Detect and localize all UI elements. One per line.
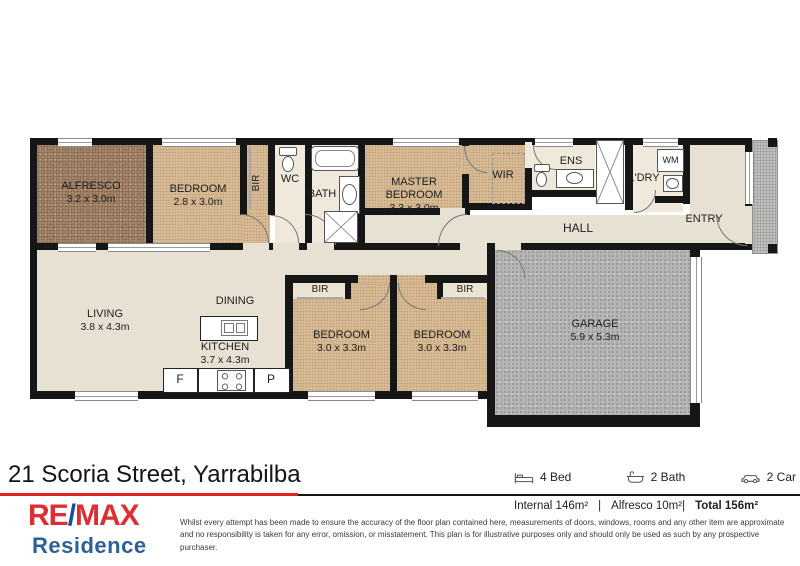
room-label-wir: WIR xyxy=(486,169,520,182)
window xyxy=(75,391,138,401)
bath-icon xyxy=(626,470,645,484)
sink-icon xyxy=(236,323,245,333)
doorway xyxy=(525,142,532,168)
fridge-label: F xyxy=(166,372,194,386)
window xyxy=(58,138,92,147)
title-underline-red xyxy=(0,493,298,496)
floor-plan: ALFRESCO3.2 x 3.0m BEDROOM2.8 x 3.0m BIR… xyxy=(0,0,800,460)
window xyxy=(58,243,96,252)
closet-rail xyxy=(441,297,485,299)
wall xyxy=(30,138,37,398)
bath-summary: 2 Bath xyxy=(626,470,686,484)
car-count: 2 Car xyxy=(767,470,796,484)
wall xyxy=(345,283,351,299)
toilet-icon xyxy=(536,172,547,187)
window xyxy=(393,138,459,147)
wall xyxy=(690,243,700,257)
bath-count: 2 Bath xyxy=(651,470,686,484)
room-label-ens: ENS xyxy=(553,155,589,168)
laundry-tub-icon xyxy=(666,178,679,189)
bench-divider xyxy=(197,368,199,393)
wall xyxy=(487,243,495,427)
pantry-label: P xyxy=(256,372,286,386)
bench-divider xyxy=(253,368,255,393)
entry-porch xyxy=(752,140,778,254)
window xyxy=(643,138,678,147)
floor-plan-page: ALFRESCO3.2 x 3.0m BEDROOM2.8 x 3.0m BIR… xyxy=(0,0,800,566)
room-label-bedroom3: BEDROOM3.0 x 3.3m xyxy=(293,329,390,355)
remax-wordmark: RE/MAX xyxy=(28,501,147,531)
property-address: 21 Scoria Street, Yarrabilba xyxy=(8,461,301,489)
room-label-bath: BATH xyxy=(302,188,342,201)
bed-icon xyxy=(514,471,534,484)
property-summary: 4 Bed 2 Bath 2 Car xyxy=(514,468,796,486)
room-label-bir3: BIR xyxy=(306,284,334,296)
alfresco-area: Alfresco 10m²| xyxy=(611,500,685,512)
bed-summary: 4 Bed xyxy=(514,470,571,484)
title-underline-black xyxy=(298,494,800,496)
wall xyxy=(390,283,397,398)
remax-logo: RE/MAX Residence xyxy=(28,501,147,557)
sink-icon xyxy=(224,323,234,333)
doorway xyxy=(243,243,269,250)
area-measurements: Internal 146m² | Alfresco 10m²| Total 15… xyxy=(514,500,796,512)
wall xyxy=(683,138,690,204)
room-label-bir4: BIR xyxy=(451,284,479,296)
room-label-garage: GARAGE5.9 x 5.3m xyxy=(545,318,645,344)
internal-area: Internal 146m² xyxy=(514,500,588,512)
doorway xyxy=(358,275,390,283)
room-label-living: LIVING3.8 x 4.3m xyxy=(55,308,155,334)
basin-icon xyxy=(342,184,357,205)
toilet-icon xyxy=(282,156,294,172)
doorway xyxy=(397,275,425,283)
room-label-hall: HALL xyxy=(556,221,600,235)
car-summary: 2 Car xyxy=(740,470,796,484)
doorway xyxy=(495,243,521,250)
window xyxy=(308,391,375,401)
shower-icon xyxy=(324,211,358,243)
toilet-icon xyxy=(534,164,550,172)
room-label-entry: ENTRY xyxy=(680,213,728,226)
garage-door xyxy=(690,257,702,403)
room-label-alfresco: ALFRESCO3.2 x 3.0m xyxy=(41,180,141,206)
room-label-kitchen: KITCHEN3.7 x 4.3m xyxy=(197,341,253,367)
room-label-bedroom4: BEDROOM3.0 x 3.3m xyxy=(397,329,487,355)
wall xyxy=(462,203,530,210)
porch-post xyxy=(768,138,777,147)
wall xyxy=(285,275,495,283)
doorway xyxy=(273,243,299,250)
room-label-bir1: BIR xyxy=(251,165,263,201)
wall xyxy=(487,243,752,250)
basin-icon xyxy=(566,172,583,184)
disclaimer-text: Whilst every attempt has been made to en… xyxy=(180,517,796,554)
separator: | xyxy=(598,500,601,512)
room-label-wc: WC xyxy=(272,173,308,186)
room-label-dining: DINING xyxy=(205,295,265,308)
cooktop-icon xyxy=(217,370,246,391)
wall xyxy=(146,138,153,250)
remax-office-name: Residence xyxy=(32,535,147,557)
sliding-door xyxy=(108,243,210,252)
toilet-icon xyxy=(279,147,297,156)
room-label-ldry: L'DRY xyxy=(622,172,666,185)
wall xyxy=(525,190,600,197)
window xyxy=(162,138,236,147)
bathtub-icon xyxy=(315,150,355,167)
wall xyxy=(690,403,700,427)
shower-icon xyxy=(596,140,624,204)
window xyxy=(745,152,754,204)
closet-rail xyxy=(297,297,343,299)
total-area: Total 156m² xyxy=(695,500,758,512)
room-label-wm: WM xyxy=(657,155,684,166)
car-icon xyxy=(740,471,761,484)
window xyxy=(412,391,478,401)
porch-post xyxy=(768,244,777,253)
bed-count: 4 Bed xyxy=(540,470,571,484)
room-label-bedroom2: BEDROOM2.8 x 3.0m xyxy=(153,183,243,209)
wall xyxy=(487,415,700,427)
room-label-master: MASTERBEDROOM3.3 x 3.0m xyxy=(370,176,458,215)
